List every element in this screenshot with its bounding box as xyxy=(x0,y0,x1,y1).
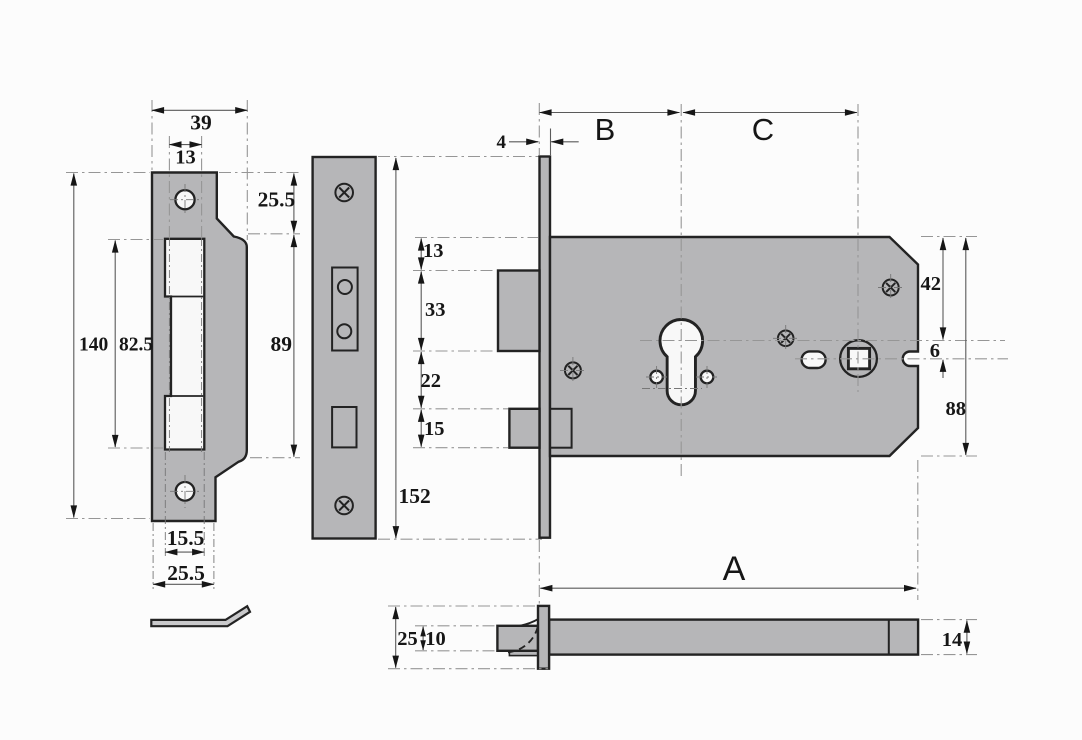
svg-text:152: 152 xyxy=(399,484,431,508)
svg-text:140: 140 xyxy=(79,335,108,356)
svg-text:15: 15 xyxy=(424,418,445,440)
svg-text:13: 13 xyxy=(423,240,444,262)
svg-text:10: 10 xyxy=(425,628,446,650)
svg-text:25.5: 25.5 xyxy=(167,561,205,585)
svg-text:4: 4 xyxy=(497,132,507,153)
svg-text:15.5: 15.5 xyxy=(167,526,205,550)
svg-text:39: 39 xyxy=(190,111,212,135)
svg-text:B: B xyxy=(595,112,616,147)
svg-text:25.5: 25.5 xyxy=(258,188,296,212)
svg-text:14: 14 xyxy=(942,629,963,651)
svg-text:C: C xyxy=(752,112,774,147)
svg-text:42: 42 xyxy=(921,273,942,295)
svg-text:13: 13 xyxy=(175,147,196,169)
svg-text:22: 22 xyxy=(421,370,442,392)
svg-text:A: A xyxy=(723,550,746,588)
svg-text:82.5: 82.5 xyxy=(119,335,153,356)
svg-text:25: 25 xyxy=(397,628,418,650)
svg-text:33: 33 xyxy=(425,299,446,321)
svg-text:6: 6 xyxy=(930,340,940,362)
svg-text:88: 88 xyxy=(946,398,967,420)
svg-text:89: 89 xyxy=(271,332,293,356)
